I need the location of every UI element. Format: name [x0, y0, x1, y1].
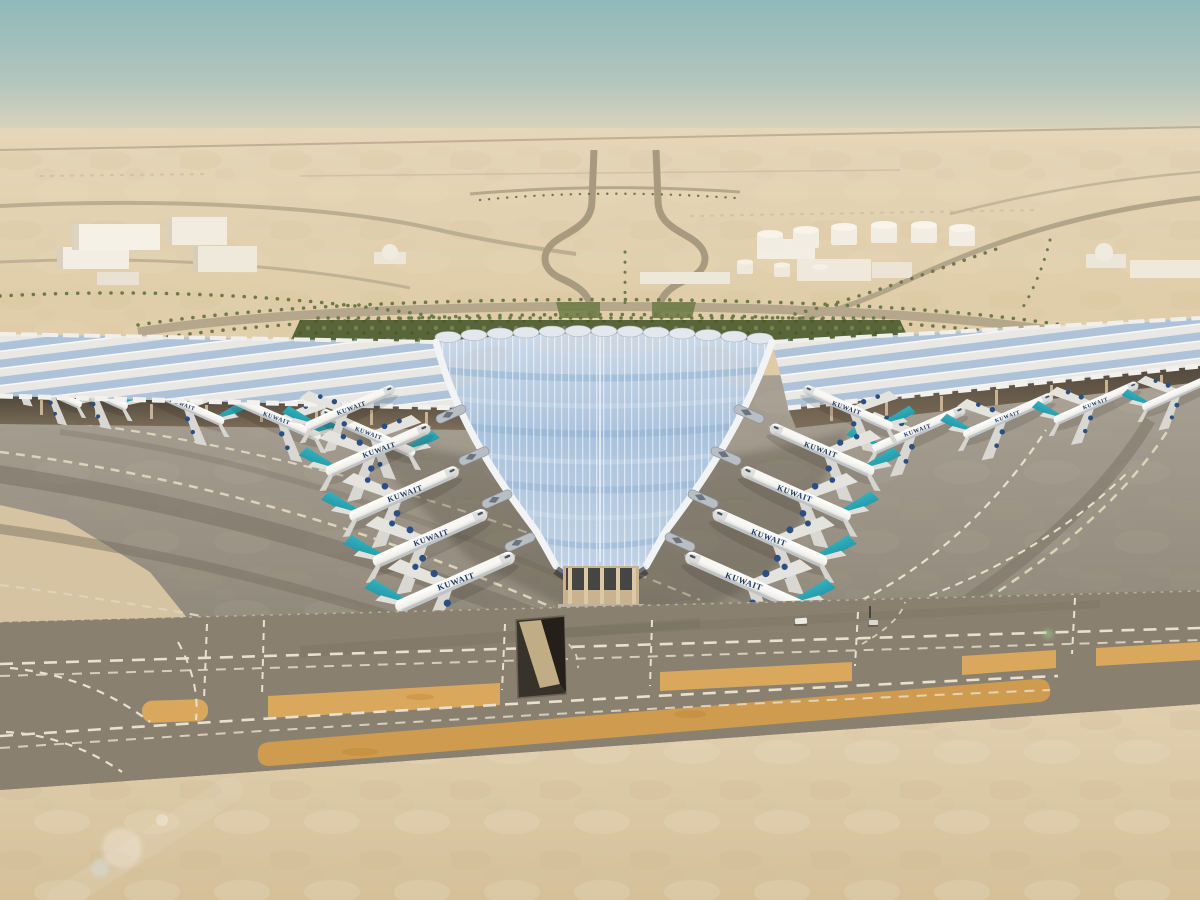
service-tunnel [516, 616, 566, 698]
service-vehicle [869, 620, 878, 625]
airport-rendering: KUWAIT KUWAIT KUWAIT KUWAIT KUWAIT KUWAI… [0, 0, 1200, 900]
light-pole [869, 606, 871, 618]
terminal-entrance [558, 566, 644, 610]
service-vehicle [795, 618, 807, 625]
